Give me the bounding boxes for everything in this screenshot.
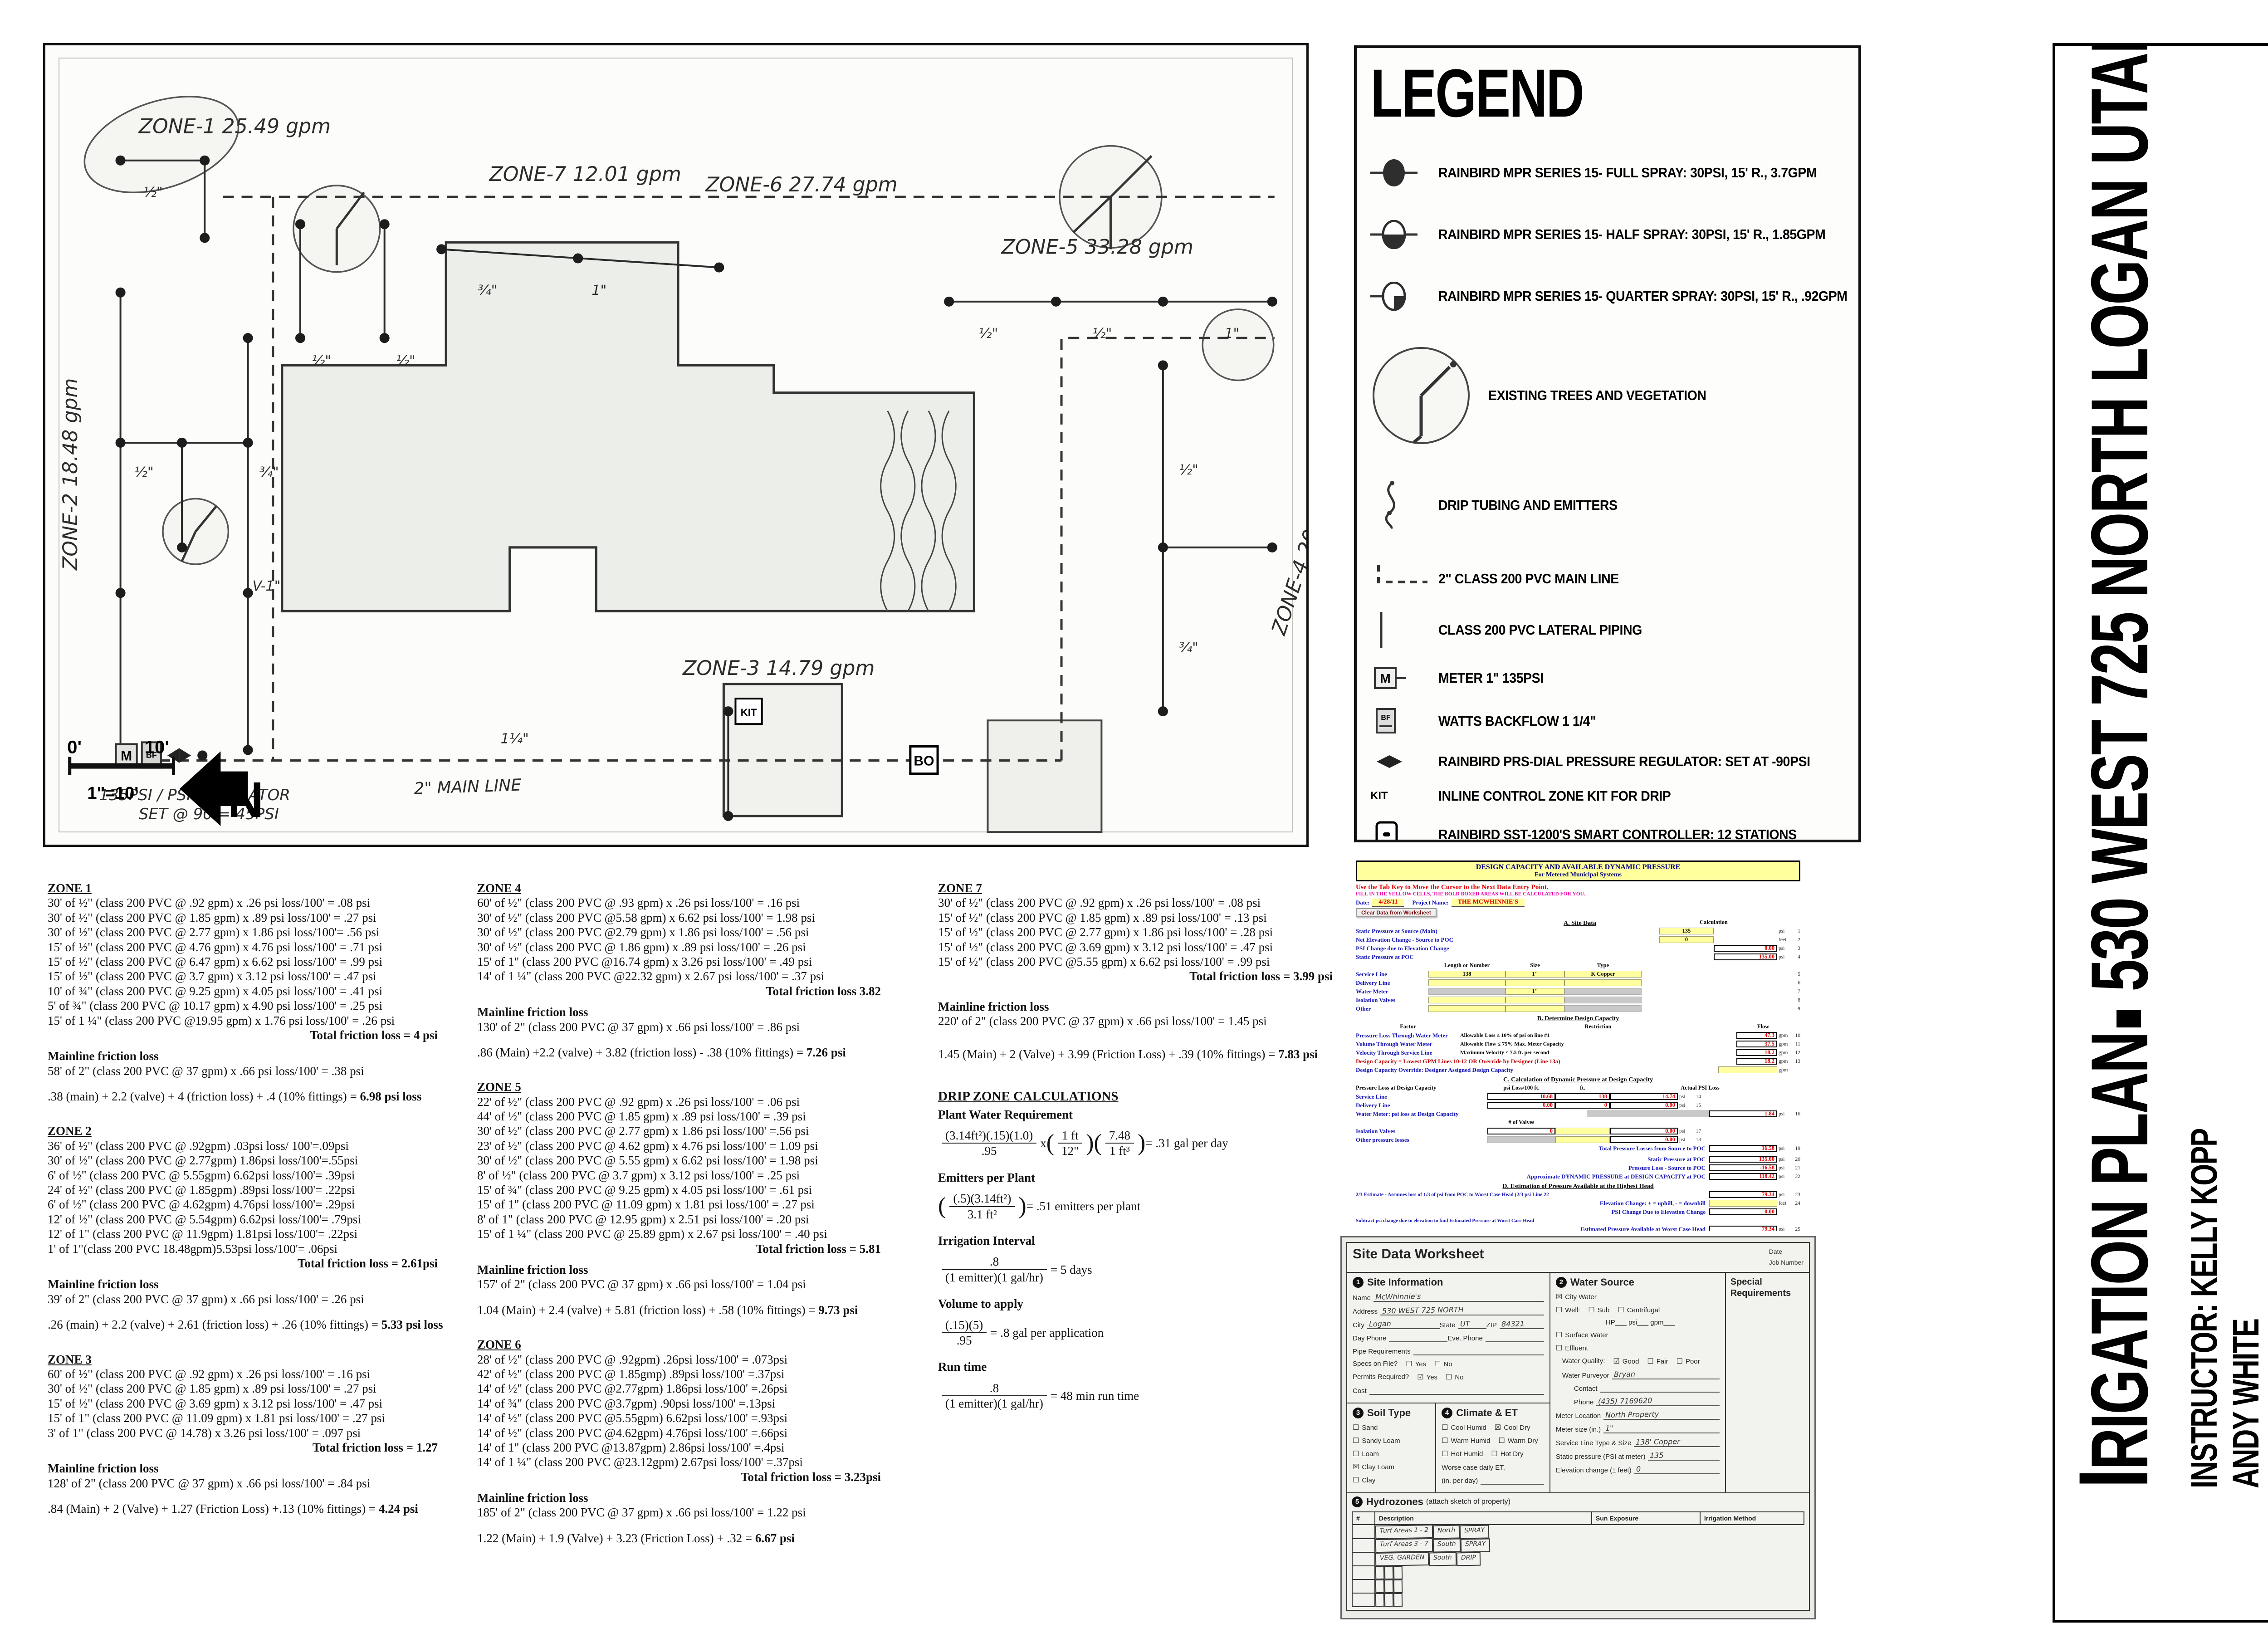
credits: INSTRUCTOR: KELLY KOPP ANDY WHITE JD. MC… <box>2184 406 2268 1488</box>
hydrozone-row <box>1352 1566 1804 1579</box>
svg-text:M: M <box>1380 671 1390 685</box>
svg-text:M: M <box>121 749 132 764</box>
legend-item-lateral: CLASS 200 PVC LATERAL PIPING <box>1370 611 1845 649</box>
input-cell[interactable]: 135 <box>1659 928 1714 934</box>
input-cell[interactable] <box>1555 1136 1610 1143</box>
svg-text:¾": ¾" <box>259 464 279 480</box>
calc-line: 15' of ¾" (class 200 PVC @ 9.25 gpm) x 4… <box>477 1183 894 1197</box>
legend-panel: LEGEND RAINBIRD MPR SERIES 15- FULL SPRA… <box>1354 45 1861 842</box>
legend-item-trees: EXISTING TREES AND VEGETATION <box>1370 343 1845 448</box>
zone-5-calcs: ZONE 5 22' of ½" (class 200 PVC @ .92 gp… <box>477 1080 894 1317</box>
eve-phone-field <box>1486 1333 1544 1342</box>
special-requirements-section: SpecialRequirements <box>1726 1273 1809 1492</box>
specs-no-checkbox: ☐ <box>1434 1360 1441 1368</box>
calc-line: 15' of ½" (class 200 PVC @ 3.7 gpm) x 3.… <box>48 969 451 983</box>
sheet-row-9: Other9 <box>1356 1004 1800 1013</box>
drip-icon <box>1370 480 1438 530</box>
cost-field <box>1369 1386 1544 1395</box>
service-line-field: 138' Copper <box>1634 1437 1719 1447</box>
water-source-section: 2Water Source ☒City Water ☐Well:☐Sub☐Cen… <box>1550 1273 1726 1492</box>
calc-line: 8' of 1" (class 200 PVC @ 12.95 gpm) x 2… <box>477 1212 894 1227</box>
calc-line: 15' of 1" (class 200 PVC @ 11.09 gpm) x … <box>477 1197 894 1212</box>
svg-text:½": ½" <box>396 353 415 369</box>
calc-line: 14' of ½" (class 200 PVC @5.55gpm) 6.62p… <box>477 1411 894 1425</box>
half-spray-icon <box>1370 220 1438 249</box>
calc-line: 15' of ½" (class 200 PVC @ 3.69 gpm) x 3… <box>48 1396 451 1411</box>
cool-dry-checkbox: ☒ <box>1495 1424 1501 1432</box>
calc-line: 15' of ½" (class 200 PVC @ 1.85 gpm) x .… <box>938 910 1346 925</box>
site-plan-panel: M BF BO KIT ZONE-1 25.49 gpm ZON <box>43 43 1309 847</box>
meter-location-field: North Property <box>1603 1410 1720 1420</box>
calc-line: 30' of ½" (class 200 PVC @ 2.77 gpm) x 1… <box>48 925 451 939</box>
calc-line: 5' of ¾" (class 200 PVC @ 10.17 gpm) x 4… <box>48 998 451 1013</box>
tab-key-instruction: Use the Tab Key to Move the Cursor to th… <box>1356 884 1800 891</box>
input-cell[interactable]: 138 <box>1428 971 1505 978</box>
meter-icon: M <box>1370 665 1438 691</box>
input-cell[interactable]: 0 <box>1659 936 1714 943</box>
calc-line: 14' of 1" (class 200 PVC @13.87gpm) 2.86… <box>477 1440 894 1455</box>
calc-line: 1' of 1"(class 200 PVC 18.48gpm)5.53psi … <box>48 1242 451 1256</box>
calc-line: 14' of 1 ¼" (class 200 PVC @23.12gpm) 2.… <box>477 1455 894 1469</box>
calc-line: 23' of ½" (class 200 PVC @ 4.62 gpm) x 4… <box>477 1139 894 1153</box>
sheet-row-11: Volume Through Water MeterAllowable Flow… <box>1356 1040 1800 1048</box>
input-cell[interactable] <box>1505 979 1564 986</box>
svg-text:½": ½" <box>312 353 331 369</box>
soil-checkbox: ☐ <box>1353 1450 1359 1458</box>
clear-data-button[interactable]: Clear Data from Worksheet <box>1356 908 1437 917</box>
calc-line: 30' of ½" (class 200 PVC @ .92 gpm) x .2… <box>48 895 451 910</box>
soil-checkbox: ☐ <box>1353 1437 1359 1445</box>
calc-line: 15' of 1" (class 200 PVC @16.74 gpm) x 3… <box>477 954 894 969</box>
state-field: UT <box>1458 1320 1486 1329</box>
soil-checkbox: ☐ <box>1353 1424 1359 1432</box>
sheet-row-21: Pressure Loss - Source to POC-16.58psi21 <box>1356 1164 1800 1172</box>
calc-line: 15' of ½" (class 200 PVC @ 3.69 gpm) x 3… <box>938 940 1346 954</box>
calc-line: 30' of ½" (class 200 PVC @ 1.85 gpm) x .… <box>48 910 451 925</box>
yellow-cells-instruction: FILL IN THE YELLOW CELLS, THE BOLD BOXED… <box>1356 891 1800 897</box>
legend-title: LEGEND <box>1370 61 1740 126</box>
zone-3-label: ZONE-3 14.79 gpm <box>682 657 875 680</box>
purveyor-field: Bryan <box>1612 1370 1720 1379</box>
soil-checkbox: ☐ <box>1353 1477 1359 1484</box>
legend-item-kit: KIT INLINE CONTROL ZONE KIT FOR DRIP <box>1370 788 1845 804</box>
legend-item-half-spray: RAINBIRD MPR SERIES 15- HALF SPRAY: 30PS… <box>1370 220 1845 249</box>
calc-column-3: ZONE 7 30' of ½" (class 200 PVC @ .92 gp… <box>938 881 1346 1423</box>
svg-text:½": ½" <box>143 185 163 200</box>
calc-column-2: ZONE 4 60' of ½" (class 200 PVC @ .93 gp… <box>477 881 894 1565</box>
planting-bed <box>987 720 1101 832</box>
sheet-row-10: Pressure Loss Through Water MeterAllowab… <box>1356 1031 1800 1040</box>
calc-line: 30' of ½" (class 200 PVC @ .92 gpm) x .2… <box>938 895 1346 910</box>
zone-2-calcs: ZONE 2 36' of ½" (class 200 PVC @ .92gpm… <box>48 1124 451 1332</box>
soil-climate-row: 3Soil Type ☐Sand☐Sandy Loam☐Loam☒Clay Lo… <box>1347 1403 1550 1492</box>
calc-line: 10' of ¾" (class 200 PVC @ 9.25 gpm) x 4… <box>48 984 451 998</box>
svg-text:N: N <box>227 772 264 828</box>
calc-line: 42' of ½" (class 200 PVC @ 1.85gmp) .89p… <box>477 1367 894 1381</box>
svg-text:1¼": 1¼" <box>501 731 529 747</box>
sheet-row-2: Net Elevation Change - Source to POC0fee… <box>1356 935 1800 944</box>
sheet-row-18: Other pressure losses0.00psi18 <box>1356 1135 1800 1144</box>
sheet-row-7: Water Meter1"7 <box>1356 987 1800 996</box>
blowout-valve-icon: BO <box>910 746 938 773</box>
sheet-row-23: 2/3 Estimate - Assumes loss of 1/3 of ps… <box>1356 1190 1800 1199</box>
calc-line: 28' of ½" (class 200 PVC @ .92gpm) .26ps… <box>477 1352 894 1367</box>
input-cell[interactable] <box>1428 979 1505 986</box>
address-field: 530 WEST 725 NORTH <box>1380 1306 1544 1315</box>
pipe-requirements-field <box>1413 1346 1544 1355</box>
calc-line: 30' of ½" (class 200 PVC @ 5.55 gpm) x 6… <box>477 1153 894 1168</box>
input-cell[interactable] <box>1428 1005 1505 1012</box>
hydrozone-row: Turf Areas 1 - 2 North SPRAY <box>1352 1525 1804 1539</box>
calc-line: 15' of 1 ¼" (class 200 PVC @19.95 gpm) x… <box>48 1013 451 1028</box>
interval-formula: .8(1 emitter)(1 gal/hr) = 5 days <box>938 1254 1346 1285</box>
hydrozone-row: VEG. GARDEN South DRIP <box>1352 1552 1804 1566</box>
calc-line: 22' of ½" (class 200 PVC @ .92 gpm) x .2… <box>477 1095 894 1109</box>
sheet-row-24: Elevation Change: + = uphill, - = downhi… <box>1356 1199 1800 1208</box>
specs-yes-checkbox: ☐ <box>1406 1360 1412 1368</box>
svg-text:½": ½" <box>1179 462 1198 478</box>
svg-text:¾": ¾" <box>478 283 497 298</box>
sheet-note: Subtract psi change due to elevation to … <box>1356 1216 1800 1225</box>
svg-text:BO: BO <box>914 754 934 769</box>
city-field: Logan <box>1367 1320 1440 1329</box>
calc-line: 30' of ½" (class 200 PVC @2.79 gpm) x 1.… <box>477 925 894 939</box>
calc-line: 30' of ½" (class 200 PVC @ 1.86 gpm) x .… <box>477 940 894 954</box>
quarter-spray-icon <box>1370 282 1438 311</box>
plant-water-formula: (3.14ft²)(.15)(1.0).95 x (1 ft12")(7.481… <box>938 1128 1346 1159</box>
sheet-row-16: Water Meter: psi loss at Design Capacity… <box>1356 1110 1800 1118</box>
city-water-checkbox: ☒ <box>1556 1293 1562 1301</box>
zone-3-calcs: ZONE 3 60' of ½" (class 200 PVC @ .92 gp… <box>48 1352 451 1516</box>
zone-6-label: ZONE-6 27.74 gpm <box>705 173 897 196</box>
title-square-mark <box>2116 1010 2141 1027</box>
author-line-2: ANDY WHITE <box>2225 406 2267 1488</box>
tree-icon <box>1370 343 1488 448</box>
site-plan-drawing: M BF BO KIT ZONE-1 25.49 gpm ZON <box>45 45 1306 845</box>
day-phone-field <box>1389 1333 1447 1342</box>
calc-line: 14' of 1 ¼" (class 200 PVC @22.32 gpm) x… <box>477 969 894 983</box>
calc-line: 30' of ½" (class 200 PVC @5.58 gpm) x 6.… <box>477 910 894 925</box>
sheet-row-1: Static Pressure at Source (Main)135psi1 <box>1356 927 1800 935</box>
hydrozones-table: # Description Sun Exposure Irrigation Me… <box>1352 1511 1804 1607</box>
sheet-row-4: Static Pressure at POC135.00psi4 <box>1356 953 1800 961</box>
full-spray-icon <box>1370 158 1438 187</box>
plan-address: 530 WEST 725 NORTH LOGAN UTAH <box>2074 43 2165 992</box>
legend-item-regulator: RAINBIRD PRS-DIAL PRESSURE REGULATOR: SE… <box>1370 752 1845 772</box>
svg-text:¾": ¾" <box>1179 640 1198 656</box>
legend-item-backflow: BF WATTS BACKFLOW 1 1/4" <box>1370 707 1845 735</box>
calc-line: 44' of ½" (class 200 PVC @ 1.85 gpm) x .… <box>477 1109 894 1124</box>
calc-line: 14' of ½" (class 200 PVC @4.62gpm) 4.76p… <box>477 1426 894 1440</box>
site-data-worksheet: Site Data Worksheet DateJob Number 1Site… <box>1340 1236 1816 1619</box>
calc-line: 6' of ½" (class 200 PVC @ 4.62gpm) 4.76p… <box>48 1197 451 1212</box>
sheet-row-25: Estimated Pressure Available at Worst Ca… <box>1356 1225 1800 1231</box>
hydrozones-section: 5Hydrozones (attach sketch of property) … <box>1347 1492 1809 1610</box>
sheet-row-15: Delivery Line0.0000.00psi15 <box>1356 1101 1800 1110</box>
calc-line: 24' of ½" (class 200 PVC @ 1.85gpm) .89p… <box>48 1183 451 1197</box>
surface-water-checkbox: ☐ <box>1556 1331 1562 1339</box>
svg-text:½": ½" <box>134 464 154 480</box>
calc-line: 36' of ½" (class 200 PVC @ .92gpm) .03ps… <box>48 1139 451 1153</box>
sheet-row-17: Isolation Valves00.00psi17 <box>1356 1127 1800 1135</box>
sheet-row-8: Isolation Valves8 <box>1356 996 1800 1004</box>
calc-line: 60' of ½" (class 200 PVC @ .93 gpm) x .2… <box>477 895 894 910</box>
zone-7-calcs: ZONE 7 30' of ½" (class 200 PVC @ .92 gp… <box>938 881 1346 1061</box>
title-block: IRIGATION PLAN530 WEST 725 NORTH LOGAN U… <box>2053 43 2268 1623</box>
design-capacity-worksheet: DESIGN CAPACITY AND AVAILABLE DYNAMIC PR… <box>1354 860 1802 1231</box>
calc-line: 15' of ½" (class 200 PVC @ 6.47 gpm) x 6… <box>48 954 451 969</box>
quality-good-checkbox: ☑ <box>1613 1358 1619 1365</box>
zone-1-calcs: ZONE 1 30' of ½" (class 200 PVC @ .92 gp… <box>48 881 451 1104</box>
calc-line: 15' of ½" (class 200 PVC @ 4.76 gpm) x 4… <box>48 940 451 954</box>
legend-item-mainline: 2" CLASS 200 PVC MAIN LINE <box>1370 563 1845 595</box>
svg-text:BF: BF <box>1381 714 1391 722</box>
hydrozone-row <box>1352 1593 1804 1607</box>
worksheet-header: Site Data Worksheet DateJob Number <box>1347 1243 1809 1273</box>
irrigation-plan-sheet: M BF BO KIT ZONE-1 25.49 gpm ZON <box>0 0 2268 1633</box>
controller-icon <box>1370 821 1438 843</box>
plan-title: IRIGATION PLAN530 WEST 725 NORTH LOGAN U… <box>2064 450 2163 1488</box>
zip-field: 84321 <box>1500 1320 1544 1329</box>
legend-item-quarter-spray: RAINBIRD MPR SERIES 15- QUARTER SPRAY: 3… <box>1370 282 1845 311</box>
svg-text:10': 10' <box>145 737 169 757</box>
sheet-row-14: Service Line10.6813814.74psi14 <box>1356 1092 1800 1101</box>
sheet-row-12: Velocity Through Service LineMaximum Vel… <box>1356 1048 1800 1057</box>
dashed-line-icon <box>1370 563 1438 595</box>
input-cell[interactable]: 1" <box>1505 971 1564 978</box>
phone-field: (435) 7169620 <box>1596 1397 1719 1406</box>
input-cell[interactable] <box>1718 1066 1777 1073</box>
main-line-label: 2" MAIN LINE <box>414 775 522 798</box>
calc-line: 14' of ¾" (class 200 PVC @3.7gpm) .90psi… <box>477 1396 894 1411</box>
sheet-row-13a: Design Capacity Override: Designer Assig… <box>1356 1066 1800 1074</box>
sheet-row-6: Delivery Line6 <box>1356 978 1800 987</box>
sheet-row-24b: PSI Change Due to Elevation Change0.00 <box>1356 1208 1800 1216</box>
contact-field <box>1600 1384 1720 1393</box>
legend-item-drip: DRIP TUBING AND EMITTERS <box>1370 480 1845 530</box>
input-cell[interactable] <box>1555 1128 1610 1134</box>
calc-line: 6' of ½" (class 200 PVC @ 5.55gpm) 6.62p… <box>48 1168 451 1183</box>
input-cell[interactable]: 1" <box>1505 988 1564 995</box>
svg-text:1"=10': 1"=10' <box>87 783 138 803</box>
sheet-row-22: Approximate DYNAMIC PRESSURE at DESIGN C… <box>1356 1172 1800 1181</box>
well-checkbox: ☐ <box>1556 1306 1562 1314</box>
static-pressure-field: 135 <box>1648 1451 1719 1461</box>
climate-et-section: 4Climate & ET ☐Cool Humid☒Cool Dry ☐Warm… <box>1436 1403 1549 1492</box>
solid-line-icon <box>1370 611 1438 649</box>
input-cell[interactable] <box>1505 1005 1564 1012</box>
calc-line: 12' of 1" (class 200 PVC @ 11.9gpm) 1.81… <box>48 1227 451 1241</box>
calc-line: 60' of ½" (class 200 PVC @ .92 gpm) x .2… <box>48 1367 451 1381</box>
zone-1-label: ZONE-1 25.49 gpm <box>138 115 331 138</box>
permits-yes-checkbox: ☑ <box>1417 1374 1423 1381</box>
svg-text:1": 1" <box>1224 326 1239 342</box>
svg-text:½": ½" <box>978 326 998 342</box>
zone-2-label: ZONE-2 18.48 gpm <box>59 378 82 571</box>
project-name-cell[interactable]: THE MCWHINNIE'S <box>1452 899 1525 907</box>
input-cell[interactable] <box>1428 997 1505 1003</box>
calc-line: 12' of ½" (class 200 PVC @ 5.54gpm) 6.62… <box>48 1212 451 1227</box>
input-cell[interactable]: K Copper <box>1564 971 1642 978</box>
input-cell[interactable] <box>1709 1200 1777 1207</box>
zone-7-label: ZONE-7 12.01 gpm <box>489 163 681 186</box>
volume-formula: (.15)(5).95 = .8 gal per application <box>938 1318 1346 1348</box>
svg-text:½": ½" <box>1092 326 1112 342</box>
input-cell[interactable] <box>1505 997 1564 1003</box>
hydrozone-row: Turf Areas 3 - 7 South SPRAY <box>1352 1539 1804 1552</box>
soil-checkbox: ☒ <box>1353 1463 1359 1471</box>
kit-icon: KIT <box>1370 790 1388 802</box>
calc-line: 15' of 1 ¼" (class 200 PVC @ 25.89 gpm) … <box>477 1227 894 1241</box>
elevation-change-field: 0 <box>1634 1465 1720 1474</box>
valve-label: V-1" <box>253 578 281 594</box>
input-cell[interactable] <box>1564 979 1642 986</box>
zone-4-calcs: ZONE 4 60' of ½" (class 200 PVC @ .93 gp… <box>477 881 894 1060</box>
hydrozone-row <box>1352 1579 1804 1593</box>
calc-line: 8' of ½" (class 200 PVC @ 3.7 gpm) x 3.1… <box>477 1168 894 1183</box>
calc-line: 15' of 1" (class 200 PVC @ 11.09 gpm) x … <box>48 1411 451 1425</box>
worksheet-title-box: DESIGN CAPACITY AND AVAILABLE DYNAMIC PR… <box>1356 861 1800 881</box>
legend-item-full-spray: RAINBIRD MPR SERIES 15- FULL SPRAY: 30PS… <box>1370 158 1845 187</box>
zone-5-label: ZONE-5 33.28 gpm <box>1001 235 1193 259</box>
drip-zone-calcs: DRIP ZONE CALCULATIONS Plant Water Requi… <box>938 1089 1346 1411</box>
svg-text:0': 0' <box>67 737 82 757</box>
regulator-icon <box>1370 752 1438 772</box>
site-information-section: 1Site Information NameMcWhinnie's Addres… <box>1347 1273 1550 1403</box>
calc-line: 30' of ½" (class 200 PVC @ 1.85 gpm) x .… <box>48 1381 451 1396</box>
zone-6-calcs: ZONE 6 28' of ½" (class 200 PVC @ .92gpm… <box>477 1337 894 1545</box>
runtime-formula: .8(1 emitter)(1 gal/hr) = 48 min run tim… <box>938 1381 1346 1411</box>
calc-column-1: ZONE 1 30' of ½" (class 200 PVC @ .92 gp… <box>48 881 451 1536</box>
effluent-checkbox: ☐ <box>1556 1345 1562 1352</box>
name-field: McWhinnie's <box>1374 1292 1544 1302</box>
sheet-row-19: Total Pressure Losses from Source to POC… <box>1356 1144 1800 1153</box>
svg-text:1": 1" <box>591 283 606 298</box>
date-cell[interactable]: 4/28/11 <box>1372 899 1404 907</box>
et-field <box>1481 1476 1544 1485</box>
calc-line: 15' of ½" (class 200 PVC @ 2.77 gpm) x 1… <box>938 925 1346 939</box>
meter-size-field: 1" <box>1603 1424 1720 1433</box>
sheet-row-5: Service Line1381"K Copper5 <box>1356 970 1800 978</box>
soil-type-section: 3Soil Type ☐Sand☐Sandy Loam☐Loam☒Clay Lo… <box>1347 1403 1436 1492</box>
legend-item-meter: M METER 1" 135PSI <box>1370 665 1845 691</box>
sheet-row-20: Static Pressure at POC135.00psi20 <box>1356 1155 1800 1164</box>
calc-line: 15' of ½" (class 200 PVC @5.55 gpm) x 6.… <box>938 954 1346 969</box>
legend-item-controller: RAINBIRD SST-1200'S SMART CONTROLLER: 12… <box>1370 821 1845 843</box>
backflow-icon: BF <box>1370 707 1438 735</box>
sheet-row-3: PSI Change due to Elevation Change0.00ps… <box>1356 944 1800 953</box>
calc-line: 14' of ½" (class 200 PVC @2.77gpm) 1.86p… <box>477 1381 894 1396</box>
sheet-row-13: Design Capacity = Lowest GPM Lines 10-12… <box>1356 1057 1800 1066</box>
permits-no-checkbox: ☐ <box>1446 1374 1452 1381</box>
date-project-row: Date:4/28/11 Project Name:THE MCWHINNIE'… <box>1356 899 1800 907</box>
calc-line: 30' of ½" (class 200 PVC @ 2.77gpm) 1.86… <box>48 1153 451 1168</box>
instructor-line: INSTRUCTOR: KELLY KOPP <box>2184 406 2225 1488</box>
calc-line: 30' of ½" (class 200 PVC @ 2.77 gpm) x 1… <box>477 1124 894 1138</box>
svg-text:KIT: KIT <box>741 707 757 718</box>
calc-line: 3' of 1" (class 200 PVC @ 14.78) x 3.26 … <box>48 1426 451 1440</box>
drip-kit-icon: KIT <box>735 699 762 724</box>
emitters-formula: ((.5)(3.14ft²)3.1 ft²) = .51 emitters pe… <box>938 1191 1346 1222</box>
